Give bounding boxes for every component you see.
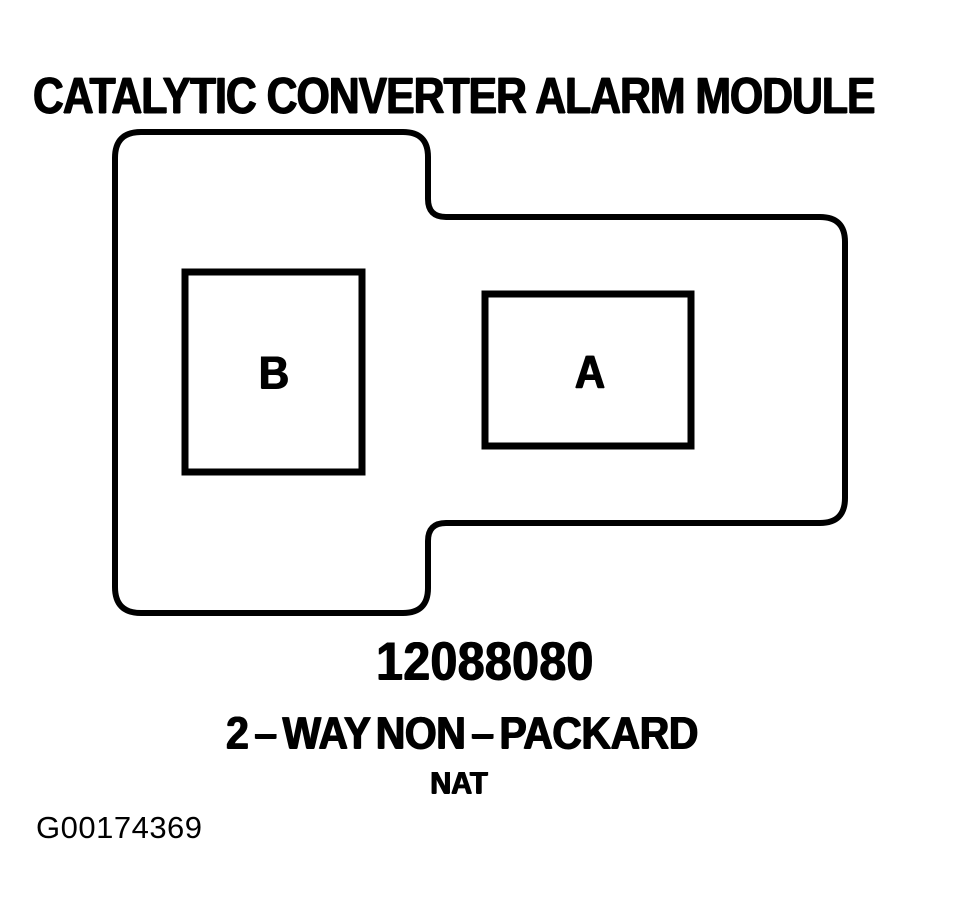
- connector-type-label: 2 – WAY NON – PACKARD: [0, 711, 943, 756]
- figure-id: G00174369: [36, 812, 203, 843]
- part-number: 12088080: [4, 636, 962, 690]
- cavity-b-label: B: [259, 350, 289, 396]
- connector-material-code: NAT: [0, 768, 940, 800]
- cavity-a-label: A: [575, 349, 605, 395]
- connector-outline: [115, 132, 845, 613]
